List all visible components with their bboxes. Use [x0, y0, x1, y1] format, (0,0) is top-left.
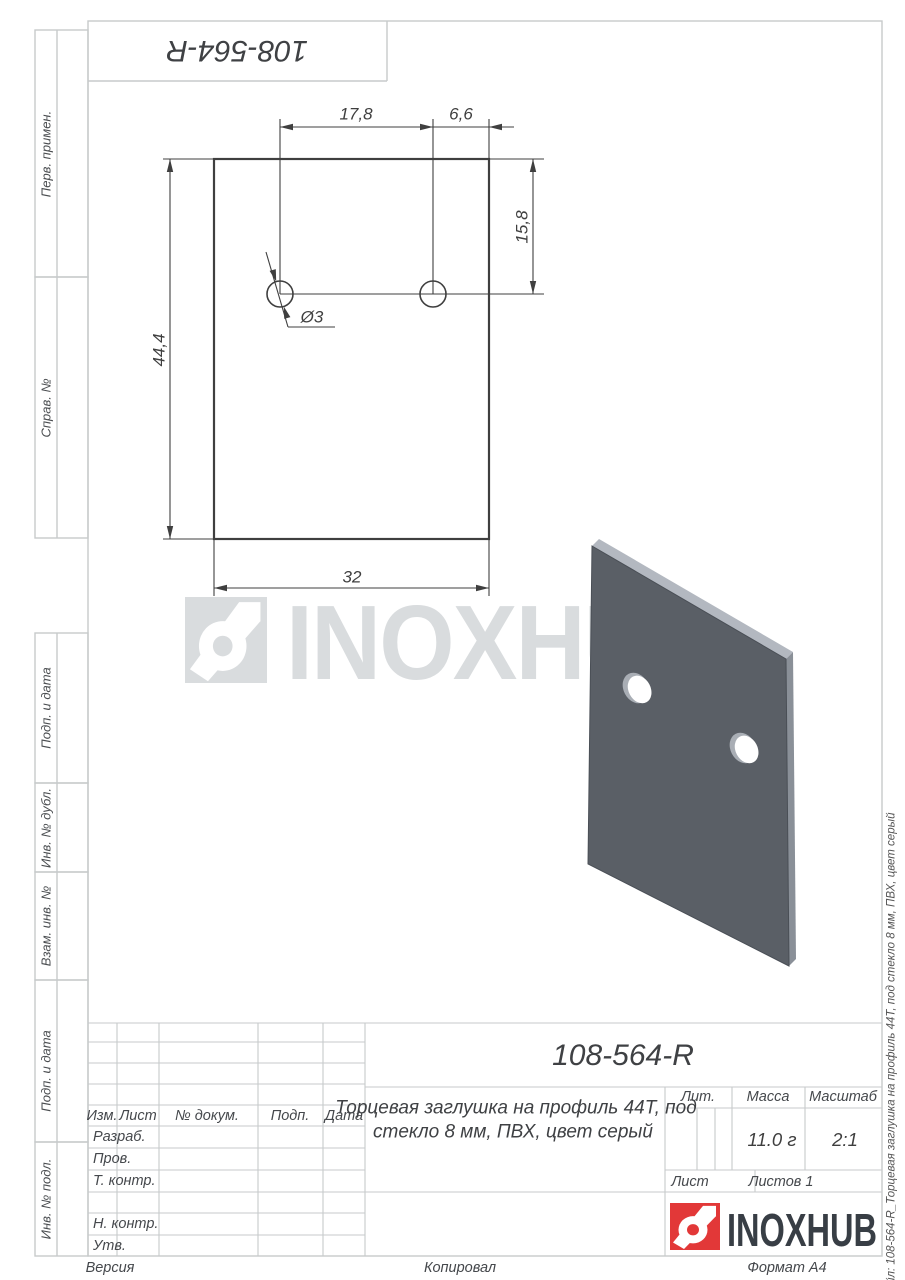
dimension-arrows [167, 124, 536, 591]
header-data: Дата [325, 1109, 363, 1124]
header-list: Лист [119, 1109, 156, 1124]
inoxhub-logo-text: INOXHUB [727, 1204, 877, 1256]
lit-label: Лит. [681, 1090, 715, 1105]
dim-top-offset: 15,8 [514, 210, 531, 243]
row-razrab: Разраб. [93, 1130, 145, 1145]
list-label: Лист [671, 1175, 708, 1190]
inoxhub-logo-icon [670, 1203, 720, 1250]
inoxhub-logo: INOXHUB [670, 1203, 877, 1256]
isometric-view [588, 539, 796, 966]
dim-height: 44,4 [151, 333, 168, 366]
listov-label: Листов 1 [749, 1175, 814, 1190]
side-label-vzam-inv: Взам. инв. № [40, 886, 53, 966]
masshtab-value: 2:1 [832, 1131, 858, 1150]
massa-value: 11.0 г [748, 1131, 797, 1150]
bottom-format: Формат А4 [747, 1261, 826, 1276]
plate-front-face [588, 546, 789, 966]
header-podp: Подп. [271, 1109, 310, 1124]
inoxhub-watermark-logo-icon [185, 597, 267, 683]
plate-outline [214, 159, 489, 539]
bottom-versiya: Версия [86, 1261, 135, 1276]
side-label-inv-dubl: Инв. № дубл. [40, 788, 53, 868]
part-name-line1: Торцевая заглушка на профиль 44Т, под [335, 1099, 696, 1118]
side-label-inv-podl: Инв. № подл. [40, 1159, 53, 1240]
masshtab-label: Масштаб [809, 1090, 877, 1105]
side-label-podp-data-2: Подп. и дата [40, 1030, 53, 1111]
row-t-kontr: Т. контр. [93, 1174, 156, 1189]
side-label-perv-primen: Перв. примен. [40, 111, 53, 197]
dim-width: 32 [343, 569, 362, 586]
title-block-code: 108-564-R [552, 1041, 694, 1071]
row-n-kontr: Н. контр. [93, 1217, 158, 1232]
side-label-podp-data-1: Подп. и дата [40, 667, 53, 748]
row-prov: Пров. [93, 1152, 131, 1167]
dimension-lines [163, 119, 544, 596]
drawing-sheet: INOXHUB [0, 0, 905, 1280]
bottom-kopiroval: Копировал [424, 1261, 496, 1276]
row-utv: Утв. [93, 1239, 126, 1254]
header-dokum: № докум. [175, 1109, 239, 1124]
header-izm: Изм. [87, 1109, 118, 1124]
side-label-sprav-no: Справ. № [40, 378, 53, 437]
front-view [163, 119, 544, 596]
dim-hole-spacing: 17,8 [339, 106, 372, 123]
massa-label: Масса [747, 1090, 790, 1105]
dim-hole-diameter: Ø3 [301, 309, 324, 326]
dim-edge-offset: 6,6 [449, 106, 473, 123]
file-name-label: Файл: 108-564-R_Торцевая заглушка на про… [886, 813, 898, 1280]
top-box-code: 108-564-R [166, 35, 308, 65]
part-name-line2: стекло 8 мм, ПВХ, цвет серый [373, 1123, 653, 1142]
